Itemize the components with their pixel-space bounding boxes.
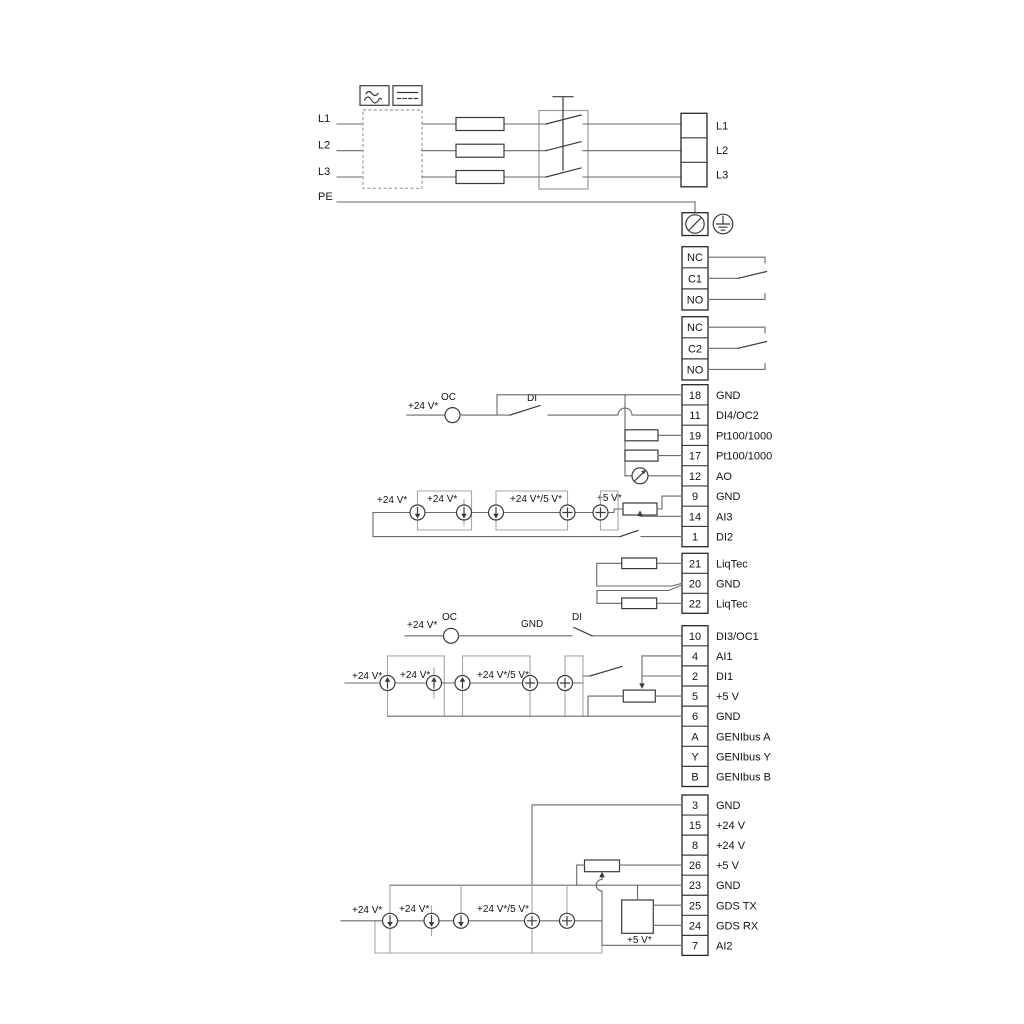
plus24v-5v-label: +24 V*/5 V*	[477, 670, 529, 681]
input-wires	[337, 124, 363, 177]
terminal-label: GND	[716, 491, 741, 503]
relay1-nc: NC	[687, 252, 703, 264]
relay-1-block: NC C1 NO	[682, 247, 767, 310]
terminal-number: 8	[692, 840, 698, 852]
relay1-no: NO	[687, 294, 704, 306]
plus24v-label: +24 V*	[377, 495, 407, 506]
input-label-l3: L3	[318, 166, 330, 178]
gnd-label: GND	[521, 619, 543, 630]
terminal-label: GENIbus B	[716, 772, 771, 784]
terminal-label: GND	[716, 800, 741, 812]
terminal-label: GND	[716, 390, 741, 402]
terminal-label: LiqTec	[716, 558, 748, 570]
di-switch	[574, 628, 592, 636]
plus24v-label: +24 V*	[352, 671, 382, 682]
voltage-source-icon	[525, 913, 540, 928]
current-source-icon	[383, 913, 398, 928]
di1-switch	[590, 667, 622, 677]
plus24v-label: +24 V*	[400, 670, 430, 681]
terminal-number: 20	[689, 578, 701, 590]
terminal-label: GDS RX	[716, 920, 759, 932]
relay-2-block: NC C2 NO	[682, 317, 767, 380]
terminal-label: GND	[716, 880, 741, 892]
relay1-contact	[738, 272, 767, 279]
voltage-source-icon	[560, 913, 575, 928]
terminal-number: 14	[689, 511, 701, 523]
current-source-icon	[427, 676, 442, 691]
emc-filter-box	[363, 110, 422, 188]
terminal-label: Pt100/1000	[716, 430, 772, 442]
mains-output-terminals: L1 L2 L3	[681, 113, 728, 187]
open-collector-icon	[444, 628, 459, 643]
liqtec-sensor-1	[622, 558, 657, 569]
output-label-l2: L2	[716, 145, 728, 157]
terminal-number: 23	[689, 880, 701, 892]
ai3-di2-circuit: +24 V* +24 V* +24 V*/5 V* +5 V*	[373, 491, 682, 537]
terminal-label: DI1	[716, 671, 733, 683]
ai1-di1-circuit: +24 V* +24 V* +24 V*/5 V*	[345, 656, 682, 716]
di4-circuit: +24 V* OC DI	[407, 392, 682, 423]
output-label-l3: L3	[716, 170, 728, 182]
terminal-number: 22	[689, 598, 701, 610]
dc-symbol-icon	[393, 86, 422, 106]
wiring-diagram-page: L1 L2 L3 PE	[0, 0, 1024, 1024]
terminal-number: 5	[692, 691, 698, 703]
terminal-number: 7	[692, 940, 698, 952]
terminal-number: 17	[689, 451, 701, 463]
input-label-l2: L2	[318, 140, 330, 152]
pe-wire	[337, 202, 695, 213]
terminal-number: 26	[689, 860, 701, 872]
ai2-gds-circuit: +24 V* +24 V* +24 V*/5 V* +5 V*	[341, 805, 682, 953]
terminal-number: Y	[691, 751, 699, 763]
plus5v-label: +5 V*	[627, 935, 652, 946]
current-source-icon	[380, 676, 395, 691]
terminal-number: 25	[689, 900, 701, 912]
di-label: DI	[572, 612, 582, 623]
current-source-icon	[454, 913, 469, 928]
potentiometer	[588, 690, 682, 716]
ao-meter-icon	[625, 468, 682, 484]
current-source-icon	[457, 505, 472, 520]
terminal-label: GDS TX	[716, 900, 757, 912]
mains-input-section: L1 L2 L3 PE	[318, 86, 733, 236]
terminal-label: DI3/OC1	[716, 631, 759, 643]
plus24v-5v-label: +24 V*/5 V*	[510, 494, 562, 505]
current-source-icon	[424, 913, 439, 928]
current-source-icon	[455, 676, 470, 691]
voltage-source-icon	[558, 676, 573, 691]
terminal-label: AI1	[716, 651, 733, 663]
plus24v-label: +24 V*	[352, 905, 382, 916]
terminal-label: +24 V	[716, 840, 746, 852]
open-collector-icon	[445, 408, 460, 423]
terminal-label: +24 V	[716, 820, 746, 832]
wiring-diagram: L1 L2 L3 PE	[0, 0, 1024, 1024]
relay2-no: NO	[687, 364, 704, 376]
fuse-l3	[456, 171, 504, 184]
terminal-label: AO	[716, 471, 732, 483]
terminal-label: GND	[716, 578, 741, 590]
terminal-number: B	[691, 772, 698, 784]
terminal-number: 21	[689, 558, 701, 570]
relay2-c2: C2	[688, 343, 702, 355]
terminal-number: 24	[689, 920, 701, 932]
terminal-label: AI2	[716, 940, 733, 952]
terminal-label: +5 V	[716, 860, 740, 872]
terminal-label: GENIbus Y	[716, 751, 771, 763]
fuse-l1	[456, 118, 504, 131]
pt100-resistor-2	[625, 450, 658, 461]
di-switch	[510, 406, 540, 416]
output-label-l1: L1	[716, 121, 728, 133]
plus24v-label: +24 V*	[399, 904, 429, 915]
terminal-number: 10	[689, 631, 701, 643]
ac-symbol-icon	[360, 86, 389, 106]
terminal-label: DI4/OC2	[716, 410, 759, 422]
input-label-l1: L1	[318, 113, 330, 125]
voltage-source-icon	[560, 505, 575, 520]
terminal-label: GENIbus A	[716, 731, 771, 743]
gds-module-box	[622, 885, 682, 933]
plus24v-label: +24 V*	[427, 494, 457, 505]
voltage-source-icon	[593, 505, 608, 520]
terminal-label: Pt100/1000	[716, 451, 772, 463]
current-source-icon	[410, 505, 425, 520]
oc-label: OC	[442, 612, 457, 623]
terminal-number: 18	[689, 390, 701, 402]
plus24v-label: +24 V*	[407, 620, 437, 631]
cable-gland-icon	[682, 213, 708, 236]
fuse-l2	[456, 144, 504, 157]
pt100-ao-circuits	[625, 395, 682, 484]
terminal-number: 1	[692, 532, 698, 544]
terminal-number: 15	[689, 820, 701, 832]
current-source-icon	[489, 505, 504, 520]
terminal-number: 6	[692, 711, 698, 723]
terminal-number: 9	[692, 491, 698, 503]
terminal-number: 3	[692, 800, 698, 812]
relay2-contact	[738, 342, 767, 349]
plus24v-label: +24 V*	[408, 401, 438, 412]
terminal-number: 11	[689, 410, 700, 422]
relay1-c1: C1	[688, 273, 702, 285]
terminal-number: 4	[692, 651, 698, 663]
earth-icon	[713, 214, 733, 234]
main-switch	[539, 97, 588, 189]
terminal-number: 19	[689, 430, 701, 442]
terminal-label: DI2	[716, 532, 733, 544]
oc-label: OC	[441, 392, 456, 403]
voltage-source-icon	[523, 676, 538, 691]
liqtec-sensor-2	[622, 598, 657, 609]
relay2-nc: NC	[687, 322, 703, 334]
di2-switch	[620, 531, 638, 537]
io-terminal-block-3: 3 GND 15 +24 V 8 +24 V 26 +5 V 23 GND 25…	[682, 795, 759, 955]
io-terminal-block-1: 18 GND 11 DI4/OC2 19 Pt100/1000 17 Pt100…	[682, 385, 772, 547]
terminal-label: GND	[716, 711, 741, 723]
input-label-pe: PE	[318, 191, 333, 203]
terminal-number: 2	[692, 671, 698, 683]
di3-circuit: +24 V* OC GND DI	[405, 612, 682, 643]
pt100-resistor-1	[625, 430, 658, 441]
terminal-label: LiqTec	[716, 598, 748, 610]
liqtec-block: 21 LiqTec 20 GND 22 LiqTec	[597, 553, 749, 613]
plus24v-5v-label: +24 V*/5 V*	[477, 904, 529, 915]
terminal-number: 12	[689, 471, 701, 483]
io-terminal-block-2: 10 DI3/OC1 4 AI1 2 DI1 5 +5 V 6 GND A GE…	[682, 626, 771, 787]
terminal-number: A	[691, 731, 699, 743]
terminal-label: +5 V	[716, 691, 740, 703]
terminal-label: AI3	[716, 511, 733, 523]
potentiometer	[623, 496, 682, 516]
